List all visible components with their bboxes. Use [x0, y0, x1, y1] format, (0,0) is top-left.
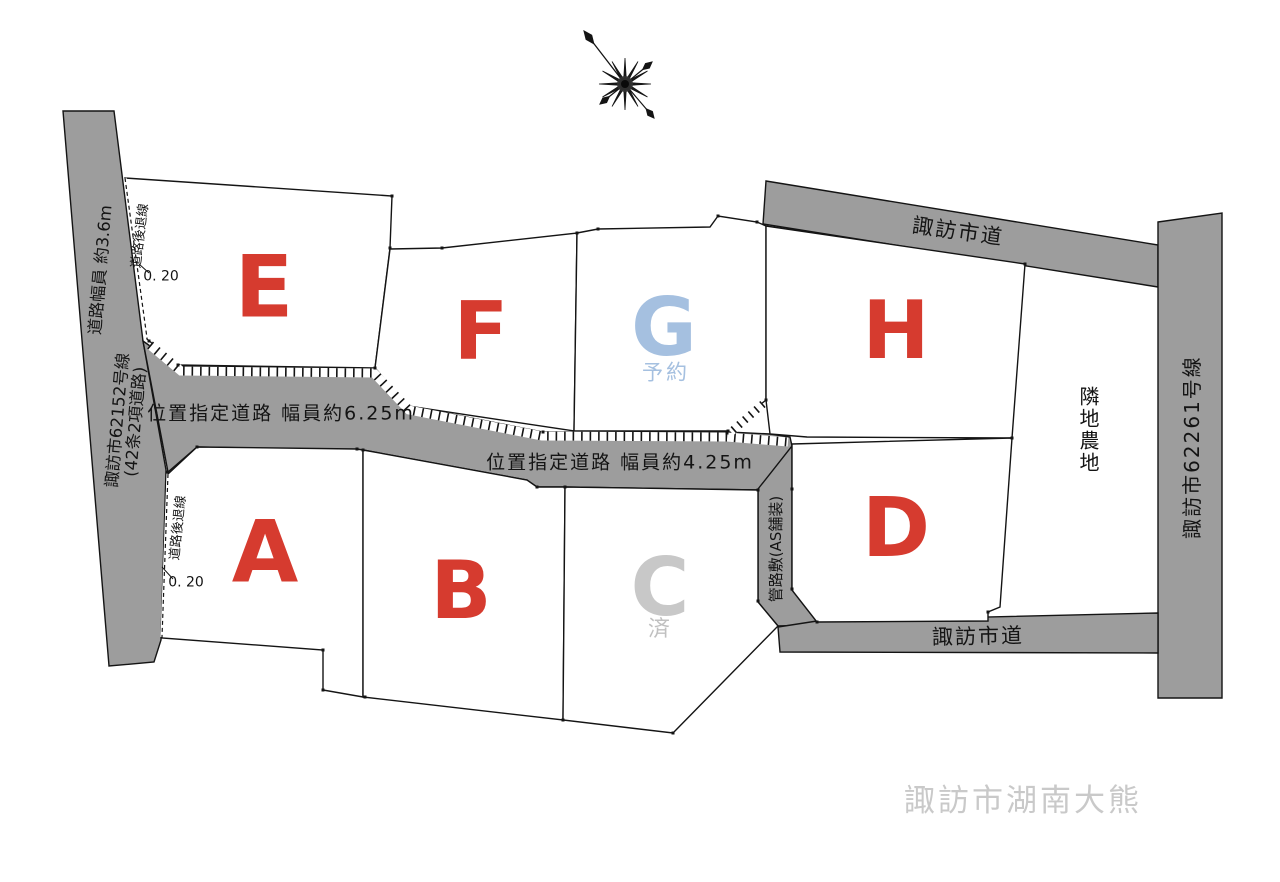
lot-status-c: 済 [648, 618, 670, 642]
lot-label-a: A [232, 506, 299, 601]
lot-status-g: 予約 [642, 361, 690, 384]
location-caption: 諏訪市湖南大熊 [904, 784, 1142, 818]
road-label-pipe-strip: 管路敷(AS舗装) [768, 496, 785, 603]
road-label-right-62261: 諏訪市62261号線 [1181, 355, 1203, 539]
lot-label-f: F [454, 288, 509, 376]
lot-label-g: G [631, 284, 697, 372]
road-label-designated-625: 位置指定道路 幅員約6.25m [147, 404, 415, 425]
lot-label-e: E [235, 241, 294, 336]
road-label-city-bottom: 諏訪市道 [932, 625, 1024, 650]
compass-rose-icon [584, 31, 654, 118]
road-label-designated-425: 位置指定道路 幅員約4.25m [486, 453, 754, 474]
lot-label-b: B [431, 547, 492, 635]
site-plan: E F G 予約 H A B C 済 D 位置指定道路 幅員約6.25m 位置指… [0, 0, 1280, 882]
lot-label-h: H [863, 287, 930, 375]
setback-value-lower: 0. 20 [168, 575, 204, 590]
lot-label-d: D [862, 484, 930, 574]
adjacent-land-label: 隣地農地 [1077, 386, 1099, 474]
setback-value-upper: 0. 20 [143, 269, 179, 284]
